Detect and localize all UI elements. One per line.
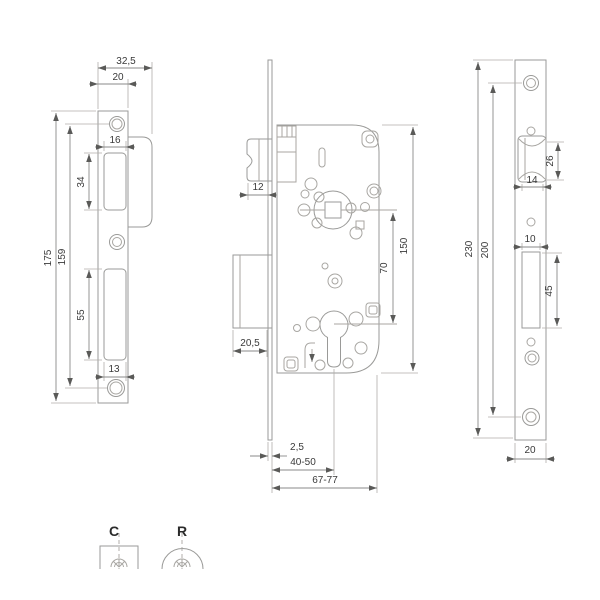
dim-case-height: 150 xyxy=(399,237,410,254)
strike-plate-side-view: 32,5 20 16 34 175 159 55 xyxy=(43,56,152,403)
square-forend-label: C xyxy=(109,523,119,539)
dim-faceplate-screw-spacing: 200 xyxy=(480,241,491,258)
screw-hole-bottom-inner xyxy=(526,412,536,422)
hole xyxy=(322,263,328,269)
screw-hole-top-inner xyxy=(112,119,122,129)
dim-bolt-width: 10 xyxy=(524,234,536,245)
wall-staple-inner xyxy=(369,306,377,314)
strike-plate-outline xyxy=(98,111,128,403)
hole xyxy=(343,358,353,368)
wall-staple xyxy=(366,303,380,317)
screw-hole-bottom xyxy=(523,409,540,426)
dim-faceplate-width: 20 xyxy=(524,445,536,456)
dim-bolt-throw: 20,5 xyxy=(240,338,260,349)
forend-faceplate xyxy=(268,60,272,440)
internal-holes xyxy=(294,148,382,370)
latch-bevel-top xyxy=(519,139,545,146)
corner-bracket-hole xyxy=(366,135,374,143)
hole xyxy=(315,360,325,370)
dim-total-width: 32,5 xyxy=(116,56,136,67)
dim-case-depth: 67-77 xyxy=(312,475,338,486)
deadbolt-opening xyxy=(104,269,126,360)
dim-latch-opening-width: 16 xyxy=(109,135,121,146)
dim-bolt-height: 45 xyxy=(544,285,555,297)
dim-bolt-opening-width: 13 xyxy=(108,364,120,375)
drawing-canvas: 32,5 20 16 34 175 159 55 xyxy=(0,0,600,600)
dim-bolt-opening-height: 55 xyxy=(76,309,87,321)
corner-staple-inner xyxy=(287,360,295,368)
pin-hole xyxy=(527,218,535,226)
latch-guide-block xyxy=(277,137,296,182)
dim-axis-distance: 70 xyxy=(379,262,390,274)
dim-screw-spacing: 159 xyxy=(57,248,68,265)
hole xyxy=(301,190,309,198)
euro-cylinder-hole xyxy=(320,311,348,367)
dim-faceplate-thickness: 2,5 xyxy=(290,442,304,453)
faceplate-outline xyxy=(515,60,546,440)
dim-latch-opening-height: 34 xyxy=(76,176,87,188)
hole xyxy=(328,274,342,288)
fan-ray xyxy=(176,561,182,567)
hole xyxy=(306,317,320,331)
strike-plate-lip xyxy=(128,137,152,227)
rivet xyxy=(356,221,364,229)
deadbolt xyxy=(233,255,272,328)
fan-ray xyxy=(119,561,125,567)
dim-plate-width: 20 xyxy=(112,72,124,83)
fan-ray xyxy=(113,561,119,567)
pin-hole xyxy=(527,338,535,346)
screw-hole-middle-inner xyxy=(113,238,122,247)
spring-wire xyxy=(305,343,315,368)
dim-latch-height: 26 xyxy=(545,155,556,167)
hole xyxy=(370,187,378,195)
dim-backset: 40-50 xyxy=(290,457,316,468)
cylinder-screw-hole-inner xyxy=(528,354,536,362)
dim-latch-projection: 12 xyxy=(252,182,264,193)
dim-total-height: 175 xyxy=(43,249,54,266)
slot xyxy=(319,148,325,167)
hole xyxy=(332,278,338,284)
faceplate-front-view: 230 200 26 14 10 45 20 xyxy=(464,60,564,463)
deadbolt-cutout xyxy=(522,252,540,328)
spindle-square-hole xyxy=(325,202,341,218)
forend-type-symbols: C R xyxy=(100,523,203,569)
lock-body-side-view: 12 20,5 2,5 40-50 67-77 70 150 xyxy=(233,60,418,493)
hole xyxy=(294,325,301,332)
screw-hole-middle xyxy=(110,235,125,250)
lock-case-outline xyxy=(277,125,379,373)
pin-hole xyxy=(527,127,535,135)
square-forend-symbol: C xyxy=(100,523,138,569)
dim-faceplate-height: 230 xyxy=(464,240,475,257)
corner-bracket xyxy=(362,131,378,147)
corner-staple xyxy=(284,357,298,371)
screw-hole-bottom-inner xyxy=(110,382,122,394)
lock-technical-drawing: 32,5 20 16 34 175 159 55 xyxy=(0,0,600,600)
hole xyxy=(305,178,317,190)
rounded-forend-symbol: R xyxy=(162,523,203,569)
cylinder-screw-hole xyxy=(525,351,539,365)
screw-hole-top xyxy=(524,76,539,91)
fan-ray xyxy=(182,561,188,567)
screw-hole-top-inner xyxy=(527,79,536,88)
dim-latch-width: 14 xyxy=(526,175,538,186)
latch-opening xyxy=(104,153,126,210)
hole xyxy=(355,342,367,354)
